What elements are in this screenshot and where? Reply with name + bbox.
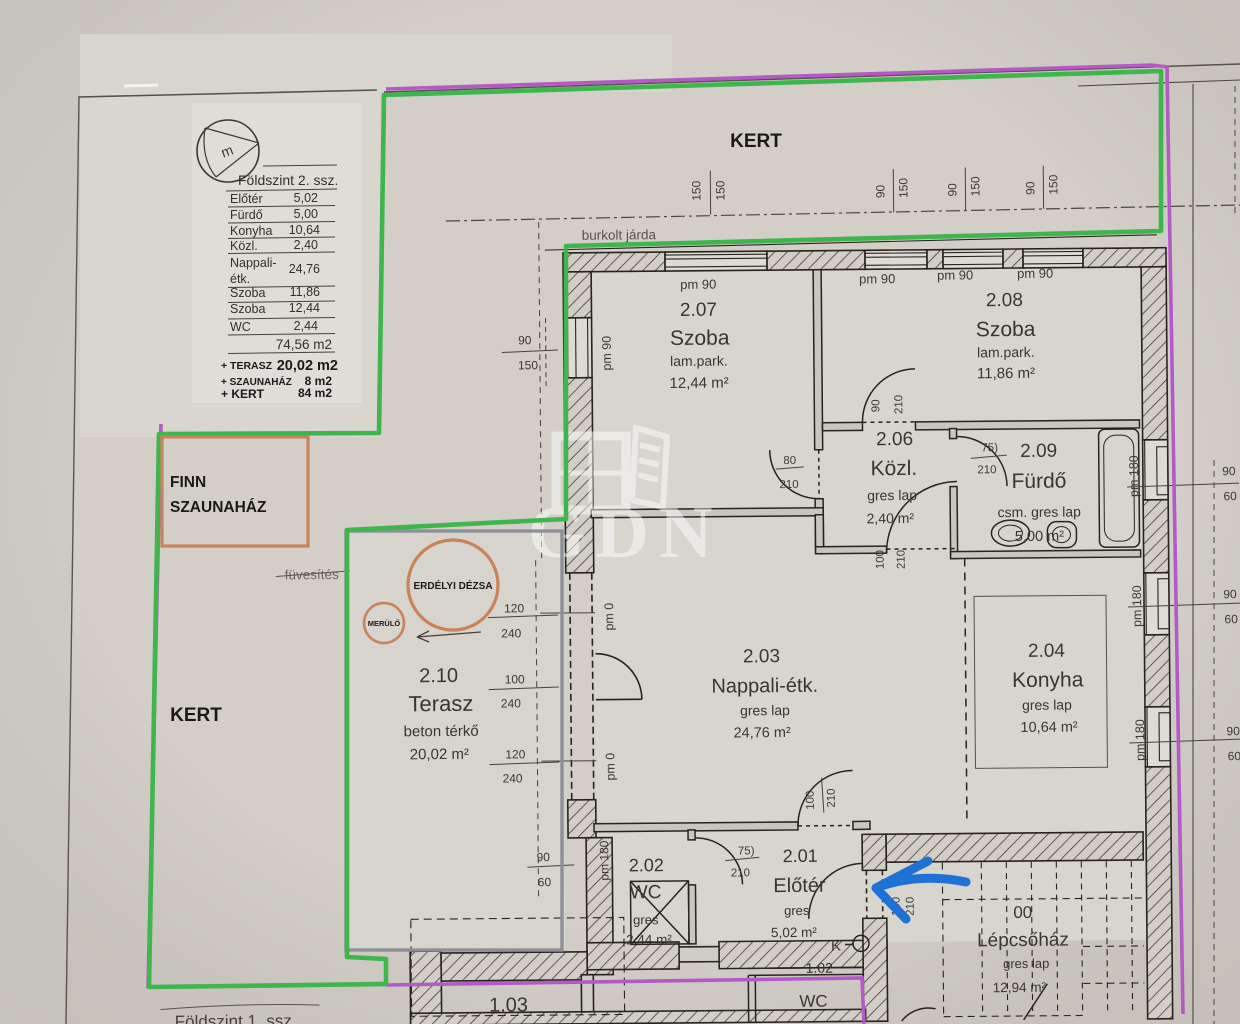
svg-text:210: 210 xyxy=(893,395,905,414)
svg-text:KERT: KERT xyxy=(170,705,222,726)
svg-text:60: 60 xyxy=(538,875,552,889)
svg-text:90: 90 xyxy=(1222,464,1236,478)
svg-text:1.03: 1.03 xyxy=(489,994,528,1016)
svg-text:WC: WC xyxy=(799,992,827,1011)
svg-text:+ TERASZ: + TERASZ xyxy=(221,360,273,372)
svg-text:étk.: étk. xyxy=(230,272,250,286)
svg-text:gres: gres xyxy=(633,912,659,927)
svg-text:150: 150 xyxy=(896,178,910,198)
svg-text:2.06: 2.06 xyxy=(876,429,913,450)
svg-text:WC: WC xyxy=(230,320,251,334)
svg-text:90: 90 xyxy=(518,333,532,347)
svg-text:100: 100 xyxy=(805,791,817,810)
svg-text:90: 90 xyxy=(1226,724,1240,738)
svg-text:pm 90: pm 90 xyxy=(600,336,614,371)
svg-text:gres lap: gres lap xyxy=(867,487,917,503)
svg-text:150: 150 xyxy=(689,180,703,200)
svg-text:00: 00 xyxy=(1013,903,1032,922)
svg-text:lam.park.: lam.park. xyxy=(670,353,728,370)
svg-text:pm 90: pm 90 xyxy=(680,277,716,292)
svg-text:Szoba: Szoba xyxy=(230,302,265,316)
svg-text:210: 210 xyxy=(731,867,750,879)
svg-text:gres lap: gres lap xyxy=(1022,697,1072,713)
svg-text:SZAUNAHÁZ: SZAUNAHÁZ xyxy=(170,499,267,516)
svg-text:Közl.: Közl. xyxy=(230,239,258,253)
svg-text:2.03: 2.03 xyxy=(743,646,780,667)
svg-text:2.02: 2.02 xyxy=(629,855,664,875)
svg-text:2.09: 2.09 xyxy=(1020,441,1057,462)
svg-text:2,44 m²: 2,44 m² xyxy=(626,932,672,947)
svg-text:20,02 m²: 20,02 m² xyxy=(410,746,469,764)
svg-text:210: 210 xyxy=(977,464,996,476)
svg-text:11,86: 11,86 xyxy=(290,285,320,299)
svg-text:12,94 m²: 12,94 m² xyxy=(993,980,1047,995)
svg-text:10,64: 10,64 xyxy=(289,223,320,237)
svg-text:Fürdő: Fürdő xyxy=(1011,470,1066,493)
svg-text:Nappali-étk.: Nappali-étk. xyxy=(711,675,818,698)
svg-text:Szoba: Szoba xyxy=(670,327,730,351)
svg-text:75): 75) xyxy=(981,442,998,454)
svg-text:pm 180: pm 180 xyxy=(597,840,611,880)
svg-text:90: 90 xyxy=(873,184,887,198)
svg-text:120: 120 xyxy=(505,747,525,761)
svg-text:150: 150 xyxy=(518,358,538,372)
svg-text:2.04: 2.04 xyxy=(1028,641,1066,662)
svg-text:2,40 m²: 2,40 m² xyxy=(866,510,914,526)
svg-text:gres: gres xyxy=(784,903,810,918)
svg-text:füvesítés: füvesítés xyxy=(285,567,339,582)
svg-text:150: 150 xyxy=(1046,174,1060,194)
svg-text:lam.park.: lam.park. xyxy=(977,344,1035,361)
svg-text:Földszint 1. ssz.: Földszint 1. ssz. xyxy=(175,1011,297,1024)
svg-text:GDN: GDN xyxy=(528,492,722,574)
svg-text:gres lap: gres lap xyxy=(1003,956,1049,971)
svg-text:pm 90: pm 90 xyxy=(1017,266,1053,281)
svg-text:Lépcsőház: Lépcsőház xyxy=(977,930,1069,952)
svg-text:Közl.: Közl. xyxy=(870,457,917,480)
svg-text:150: 150 xyxy=(713,180,727,200)
svg-text:90: 90 xyxy=(537,850,551,864)
svg-text:2,40: 2,40 xyxy=(294,238,318,252)
svg-text:pm 0: pm 0 xyxy=(603,753,617,781)
svg-text:75): 75) xyxy=(738,845,755,857)
svg-text:24,76: 24,76 xyxy=(289,262,320,276)
svg-text:Nappali-: Nappali- xyxy=(230,256,277,270)
svg-text:90: 90 xyxy=(870,399,882,412)
svg-text:+ KERT: + KERT xyxy=(221,387,265,401)
svg-text:pm 90: pm 90 xyxy=(859,271,895,286)
svg-text:Fürdő: Fürdő xyxy=(230,208,263,222)
svg-text:K: K xyxy=(831,938,841,955)
svg-text:Földszint 2. ssz.: Földszint 2. ssz. xyxy=(238,172,338,188)
svg-text:240: 240 xyxy=(501,696,521,710)
svg-text:WC: WC xyxy=(630,882,662,903)
svg-text:84 m2: 84 m2 xyxy=(298,386,332,400)
svg-text:80: 80 xyxy=(783,455,796,467)
svg-text:Terasz: Terasz xyxy=(408,691,473,717)
svg-text:Előtér: Előtér xyxy=(230,192,263,206)
svg-text:FINN: FINN xyxy=(170,474,206,491)
svg-text:5,02: 5,02 xyxy=(294,191,318,205)
svg-text:60: 60 xyxy=(1224,612,1238,626)
svg-text:20,02 m2: 20,02 m2 xyxy=(277,358,338,374)
svg-text:KERT: KERT xyxy=(730,131,782,152)
svg-text:csm. gres lap: csm. gres lap xyxy=(998,503,1082,520)
svg-text:pm 180: pm 180 xyxy=(1130,585,1144,627)
svg-text:Előtér: Előtér xyxy=(773,875,826,897)
svg-text:90: 90 xyxy=(1023,181,1037,195)
svg-text:74,56 m2: 74,56 m2 xyxy=(276,337,332,352)
svg-text:100: 100 xyxy=(875,550,887,569)
svg-text:10,64 m²: 10,64 m² xyxy=(1020,719,1078,736)
svg-text:240: 240 xyxy=(501,626,521,640)
svg-text:240: 240 xyxy=(502,771,522,785)
svg-text:5,00 m²: 5,00 m² xyxy=(1015,529,1064,545)
svg-text:gres lap: gres lap xyxy=(740,702,790,718)
svg-text:pm 90: pm 90 xyxy=(937,267,973,282)
svg-text:150: 150 xyxy=(968,176,982,196)
svg-text:Konyha: Konyha xyxy=(230,224,272,238)
svg-text:Szoba: Szoba xyxy=(976,318,1036,342)
svg-text:2,44: 2,44 xyxy=(294,319,318,333)
svg-text:90: 90 xyxy=(1223,587,1237,601)
svg-text:pm 180: pm 180 xyxy=(1133,719,1147,761)
svg-text:2.08: 2.08 xyxy=(986,290,1023,311)
svg-text:12,44 m²: 12,44 m² xyxy=(669,375,728,393)
svg-text:2.10: 2.10 xyxy=(419,665,458,687)
svg-text:120: 120 xyxy=(504,601,524,615)
svg-text:Konyha: Konyha xyxy=(1012,668,1084,692)
svg-text:2.01: 2.01 xyxy=(783,846,818,866)
svg-text:60: 60 xyxy=(1228,749,1240,763)
svg-text:2.07: 2.07 xyxy=(680,300,717,321)
svg-text:210: 210 xyxy=(896,550,908,569)
svg-text:210: 210 xyxy=(826,788,838,807)
svg-text:pm 0: pm 0 xyxy=(602,603,616,631)
svg-text:1.02: 1.02 xyxy=(806,960,834,976)
svg-text:5,02 m²: 5,02 m² xyxy=(771,925,817,940)
svg-text:beton térkő: beton térkő xyxy=(404,723,479,741)
svg-text:5,00: 5,00 xyxy=(294,207,318,221)
svg-text:MERÜLŐ: MERÜLŐ xyxy=(368,619,401,628)
svg-text:burkolt járda: burkolt járda xyxy=(582,227,657,243)
svg-text:11,86 m²: 11,86 m² xyxy=(977,365,1035,383)
svg-text:210: 210 xyxy=(779,479,798,491)
svg-text:pm 180: pm 180 xyxy=(1127,455,1141,497)
svg-text:90: 90 xyxy=(945,183,959,197)
svg-text:100: 100 xyxy=(505,672,525,686)
svg-text:ERDÉLYI DÉZSA: ERDÉLYI DÉZSA xyxy=(413,579,492,592)
svg-text:24,76 m²: 24,76 m² xyxy=(733,725,791,742)
svg-text:60: 60 xyxy=(1223,489,1237,503)
svg-text:Szoba: Szoba xyxy=(230,286,265,300)
svg-text:12,44: 12,44 xyxy=(289,301,320,315)
